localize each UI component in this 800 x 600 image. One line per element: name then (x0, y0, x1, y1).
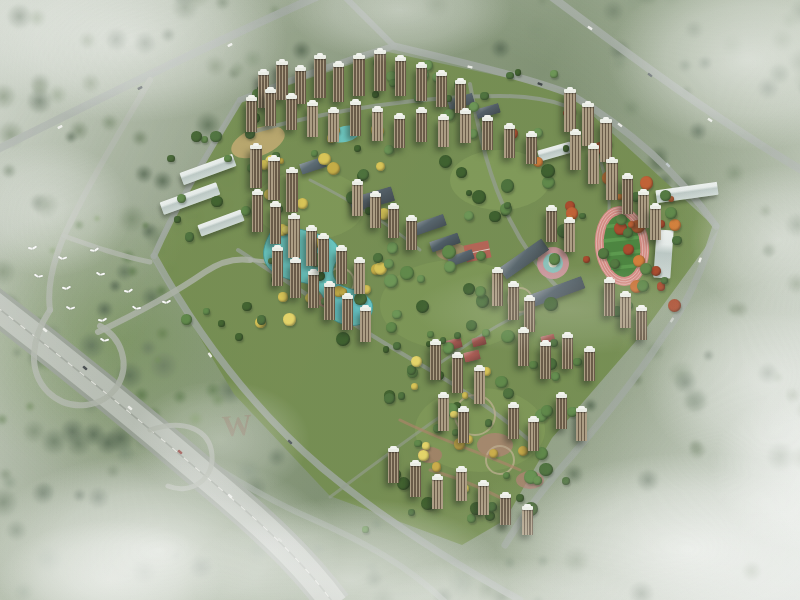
tree (400, 266, 413, 279)
tree (504, 202, 511, 209)
interchange-ramp (250, 260, 318, 278)
forest-tree-blob (42, 323, 61, 342)
tree (423, 60, 434, 71)
tree (433, 424, 442, 433)
forest-tree-blob (420, 420, 449, 449)
flying-bird (124, 288, 134, 294)
residential-tower (430, 344, 441, 380)
flying-bird (66, 306, 75, 311)
tree (271, 276, 278, 283)
forest-tree-blob (673, 369, 699, 395)
tree (568, 107, 576, 115)
tree (463, 283, 475, 295)
forest-tree-blob (188, 208, 204, 224)
tree (414, 440, 422, 448)
tree (528, 143, 537, 152)
residential-tower (246, 100, 257, 132)
garden-circular-path (455, 395, 495, 435)
forest-tree-blob (770, 28, 793, 51)
vehicle (537, 82, 543, 86)
tree (211, 196, 223, 208)
vehicle (707, 118, 713, 123)
tree (390, 469, 401, 480)
tree (482, 367, 491, 376)
vehicle (277, 537, 282, 542)
tree (224, 155, 232, 163)
forest-tree-blob (761, 241, 778, 258)
forest-tree-blob (536, 554, 551, 569)
forest-tree-blob (133, 31, 156, 54)
internal-road (252, 96, 566, 132)
tree (466, 320, 477, 331)
forest-tree-blob (667, 360, 696, 389)
garden-path (430, 470, 505, 500)
vehicle (137, 86, 143, 90)
tree (264, 189, 275, 200)
vehicle (587, 26, 592, 31)
residential-tower (306, 230, 317, 266)
forest-tree-blob (0, 467, 13, 482)
residential-tower (353, 58, 365, 96)
residential-tower (528, 421, 539, 451)
tree (485, 511, 495, 521)
entry-plaza (227, 119, 289, 164)
forest-tree-blob (220, 197, 233, 210)
tree (311, 150, 318, 157)
tree (668, 196, 675, 203)
tree (535, 409, 549, 423)
forest-tree-blob (29, 193, 49, 213)
garden-path (400, 420, 520, 470)
tree (309, 253, 322, 266)
forest-tree-blob (645, 341, 666, 362)
forest-tree-blob (93, 214, 102, 223)
residential-tower (508, 407, 519, 439)
forest-tree-blob (104, 27, 129, 52)
tree (362, 285, 371, 294)
forest-tree-blob (630, 373, 644, 387)
forest-tree-blob (266, 447, 287, 468)
residential-tower (564, 92, 576, 132)
perimeter-road (240, 46, 394, 100)
forest-tree-blob (495, 521, 509, 535)
residential-tower (576, 411, 587, 441)
tree (417, 275, 425, 283)
birds-layer (0, 0, 800, 600)
garden-ground-patch (436, 243, 468, 261)
forest-tree-blob (688, 121, 708, 141)
forest-tree-blob (108, 279, 122, 293)
forest-tree-blob (106, 424, 135, 453)
mist-patch (0, 120, 160, 300)
residential-tower (588, 148, 599, 184)
forest-tree-blob (171, 193, 192, 214)
forest-tree-blob (620, 0, 645, 13)
vehicle (617, 123, 622, 128)
tree (371, 124, 381, 134)
low-rise-building (445, 337, 463, 351)
forest-tree-blob (27, 8, 47, 28)
tree (515, 69, 521, 75)
forest-tree-blob (636, 468, 660, 492)
forest-tree-blob (33, 192, 60, 219)
vehicle (670, 317, 675, 323)
forest-tree-blob (48, 246, 57, 255)
residential-tower (526, 136, 537, 164)
forest-tree-blob (172, 389, 188, 405)
forest-tree-blob (650, 154, 670, 174)
playground-plaza (537, 247, 569, 279)
residential-tower (636, 310, 647, 340)
forest-tree-blob (131, 424, 160, 453)
playground-plaza (549, 259, 558, 268)
forest-tree-blob (149, 351, 178, 380)
forest-tree-blob (214, 165, 241, 192)
tree (463, 485, 469, 491)
mist-patch (360, 250, 780, 370)
tree (594, 142, 605, 153)
lawn-patch (450, 150, 550, 210)
tree (235, 333, 243, 341)
residential-tower (374, 53, 386, 91)
forest-tree-blob (697, 55, 713, 71)
tree (365, 207, 373, 215)
tree (550, 339, 558, 347)
residential-tower (342, 298, 353, 330)
tree (445, 403, 458, 416)
internal-road (238, 250, 545, 455)
tree (407, 365, 417, 375)
tree (384, 145, 394, 155)
tree (489, 211, 501, 223)
internal-road (470, 84, 560, 290)
tree (278, 158, 284, 164)
forest-tree-blob (242, 475, 268, 501)
residential-tower (518, 332, 529, 366)
tree (454, 79, 465, 90)
flying-bird (132, 305, 142, 311)
forest-tree-blob (291, 40, 312, 61)
forest-tree-blob (364, 569, 384, 589)
tree (464, 211, 474, 221)
residential-tower (504, 128, 515, 158)
tree (657, 220, 665, 228)
residential-tower (638, 194, 649, 228)
tree (332, 126, 340, 134)
low-rise-building (471, 335, 487, 347)
tree (467, 514, 476, 523)
garden-circular-path (508, 288, 532, 312)
forest-tree-blob (0, 258, 17, 286)
mist-layer (0, 0, 800, 600)
low-rise-building (447, 249, 475, 267)
forest-tree-blob (594, 145, 607, 158)
tree (282, 226, 290, 234)
forest-tree-blob (771, 371, 784, 384)
forest-tree-blob (47, 84, 68, 105)
forest-tree-blob (274, 597, 304, 600)
forest-tree-blob (622, 98, 642, 118)
slab-building (179, 154, 236, 185)
forest-tree-blob (152, 170, 174, 192)
forest-tree-blob (160, 27, 176, 43)
tree (354, 293, 367, 306)
residential-tower (354, 262, 365, 294)
tree (544, 297, 557, 310)
forest-tree-blob (563, 464, 584, 485)
forest-tree-blob (68, 355, 80, 367)
tree (616, 194, 622, 200)
tree (442, 245, 456, 259)
residential-tower (416, 112, 427, 142)
forest-tree-blob (134, 164, 154, 184)
forest-tree-blob (155, 326, 170, 341)
forest-tree-blob (720, 33, 745, 58)
forest-tree-blob (562, 546, 592, 576)
tree (462, 392, 469, 399)
field-mow-stripe (606, 222, 633, 228)
forest-tree-blob (588, 159, 610, 181)
tree (374, 262, 387, 275)
tree (516, 494, 524, 502)
tree (470, 502, 483, 515)
forest-tree-blob (422, 0, 452, 19)
field-mow-stripe (611, 264, 638, 270)
tree (411, 356, 422, 367)
forest-tree-blob (358, 469, 376, 487)
forest-tree-blob (81, 422, 106, 447)
forest-tree-blob (473, 427, 495, 449)
tree (432, 462, 441, 471)
tree (259, 160, 269, 170)
tree (626, 302, 634, 310)
vehicle (698, 257, 702, 263)
forest-tree-blob (688, 440, 708, 460)
field-mow-stripe (605, 249, 640, 256)
tree (630, 280, 643, 293)
flying-bird (100, 337, 109, 342)
tree (383, 346, 389, 352)
garden-circular-path (326, 268, 354, 296)
low-rise-building (349, 186, 395, 213)
forest-tree-blob (0, 413, 9, 427)
residential-tower (394, 118, 405, 148)
forest-tree-blob (22, 419, 47, 444)
forest-tree-blob (32, 316, 44, 328)
tree (267, 164, 275, 172)
forest-tree-blob (758, 204, 772, 218)
mist-patch (600, 250, 800, 510)
residential-tower (522, 509, 533, 535)
residential-tower (524, 300, 535, 332)
tree (247, 164, 256, 173)
forest-tree-blob (586, 162, 601, 177)
tree (443, 342, 454, 353)
tree (602, 171, 615, 184)
residential-tower (508, 286, 519, 320)
forest-tree-blob (767, 61, 791, 85)
tree (432, 73, 442, 83)
playground-plaza (543, 253, 563, 273)
low-rise-building (475, 103, 501, 119)
tree (533, 157, 543, 167)
forest-tree-blob (105, 464, 121, 480)
tree (457, 92, 463, 98)
tree (541, 164, 554, 177)
tree (276, 224, 288, 236)
tree (275, 205, 283, 213)
tree (524, 470, 538, 484)
forest-tree-blob (726, 302, 741, 317)
residential-tower (556, 397, 567, 429)
forest-tree-blob (768, 63, 791, 86)
forest-tree-blob (68, 120, 89, 141)
residential-tower (492, 272, 503, 306)
central-lake (264, 228, 373, 326)
forest-tree-blob (156, 245, 169, 258)
low-rise-building (299, 156, 327, 174)
low-rise-building (447, 93, 475, 111)
slab-building (537, 142, 573, 162)
forest-tree-blob (531, 595, 545, 600)
lawn-patch (380, 260, 530, 350)
tree (297, 198, 308, 209)
forest-tree-blob (154, 284, 169, 299)
forest-tree-blob (87, 486, 111, 510)
tree (563, 145, 570, 152)
forest-tree-blob (486, 442, 500, 456)
mist-patch (0, 500, 260, 600)
tree (637, 280, 649, 292)
forest-tree-blob (227, 66, 241, 80)
tree (268, 258, 274, 264)
low-rise-building (463, 349, 481, 363)
tree (563, 110, 569, 116)
slab-building (197, 209, 244, 236)
mist-patch (300, 540, 700, 600)
tree (628, 221, 635, 228)
forest-tree-blob (661, 0, 683, 7)
forest-tree-blob (628, 580, 655, 600)
forest-tree-blob (390, 419, 417, 446)
vehicle (177, 449, 182, 454)
tree (660, 190, 671, 201)
forest-tree-blob (489, 585, 515, 600)
forest-tree-blob (140, 286, 163, 309)
tree (321, 298, 328, 305)
highway-median (0, 298, 335, 600)
tree (640, 263, 652, 275)
tree (614, 222, 627, 235)
tree (362, 526, 369, 533)
residential-tower (540, 345, 551, 379)
low-rise-building (540, 333, 556, 345)
vehicle (82, 365, 87, 370)
tree (333, 286, 344, 297)
forest-tree-blob (181, 208, 196, 223)
forest-tree-blob (65, 430, 92, 457)
forest-tree-blob (146, 427, 165, 446)
tree (210, 131, 221, 142)
forest-tree-blob (647, 145, 670, 168)
vehicle (227, 43, 233, 47)
tree (371, 125, 383, 137)
residential-tower (290, 262, 301, 298)
forest-tree-blob (64, 130, 78, 144)
tree (454, 332, 461, 339)
vehicle (287, 439, 292, 444)
low-rise-building (411, 214, 447, 236)
forest-tree-blob (285, 540, 312, 567)
tree (565, 201, 576, 212)
residential-tower (620, 296, 631, 328)
forest-tree-blob (640, 244, 653, 257)
tree (336, 332, 350, 346)
tree (252, 89, 262, 99)
tree (476, 251, 486, 261)
tree (435, 371, 444, 380)
forest-tree-blob (130, 558, 157, 585)
tree (661, 277, 668, 284)
tree (387, 242, 398, 253)
residential-tower (478, 485, 489, 515)
tree (596, 148, 603, 155)
forest-tree-blob (13, 581, 35, 600)
trees-layer (0, 0, 800, 600)
tree (261, 97, 270, 106)
residential-tower (388, 208, 399, 238)
forest-tree-blob (672, 172, 699, 199)
forest-tree-blob (792, 68, 800, 92)
perimeter-road (394, 46, 716, 226)
tree (250, 162, 262, 174)
tree (623, 228, 633, 238)
vehicle (227, 493, 232, 498)
flying-bird (98, 317, 107, 322)
forest-tree-blob (145, 225, 172, 252)
track-lane-line (593, 205, 652, 287)
residential-tower (606, 162, 618, 200)
sports-court (464, 241, 492, 263)
forest-tree-blob (100, 113, 119, 132)
perimeter-road (128, 406, 448, 600)
track-lane-line (598, 211, 646, 282)
residential-tower (272, 250, 283, 286)
tree (181, 314, 192, 325)
lawn-patch (415, 388, 545, 472)
forest-tree-blob (115, 361, 144, 390)
forest-tree-blob (268, 4, 281, 17)
forest-tree-blob (702, 349, 716, 363)
flying-bird (62, 286, 71, 291)
residential-tower (600, 122, 612, 162)
forest-tree-blob (644, 151, 667, 174)
forest-tree-blob (169, 549, 181, 561)
sports-field (601, 213, 643, 278)
tree (315, 271, 325, 281)
mist-patch (660, 140, 800, 340)
tree (393, 342, 401, 350)
forest-tree-blob (6, 3, 33, 30)
tree (464, 435, 473, 444)
tree (257, 84, 268, 95)
forest-tree-blob (788, 0, 800, 26)
tree (562, 477, 570, 485)
forest-tree-blob (616, 246, 633, 263)
tree (384, 390, 395, 401)
tree (444, 261, 456, 273)
atmospheric-haze-overlay (0, 0, 800, 600)
